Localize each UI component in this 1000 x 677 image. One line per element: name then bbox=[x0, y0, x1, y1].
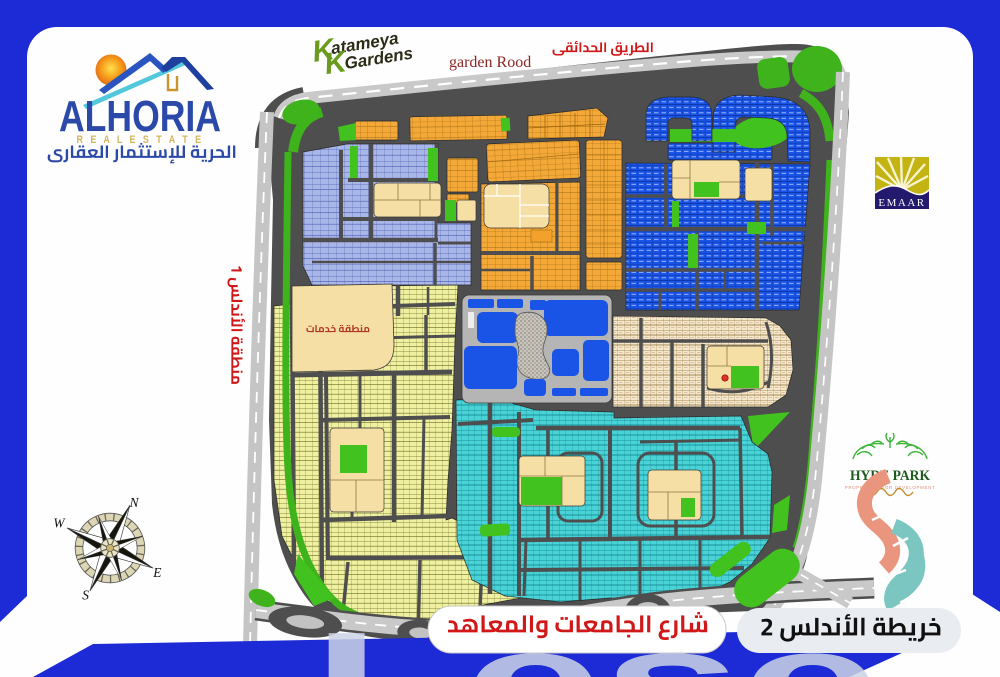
svg-text:Lese: Lese bbox=[312, 604, 880, 677]
svg-text:garden Rood: garden Rood bbox=[449, 54, 531, 71]
svg-text:N: N bbox=[129, 495, 140, 510]
svg-text:E: E bbox=[152, 565, 161, 580]
svg-text:EMAAR: EMAAR bbox=[878, 197, 925, 209]
svg-text:R E A L E S T A T E: R E A L E S T A T E bbox=[77, 134, 204, 146]
svg-text:S: S bbox=[82, 588, 89, 603]
svg-text:PROPERTIES FOR DEVELOPMENT: PROPERTIES FOR DEVELOPMENT bbox=[845, 485, 936, 490]
svg-text:W: W bbox=[53, 515, 66, 530]
